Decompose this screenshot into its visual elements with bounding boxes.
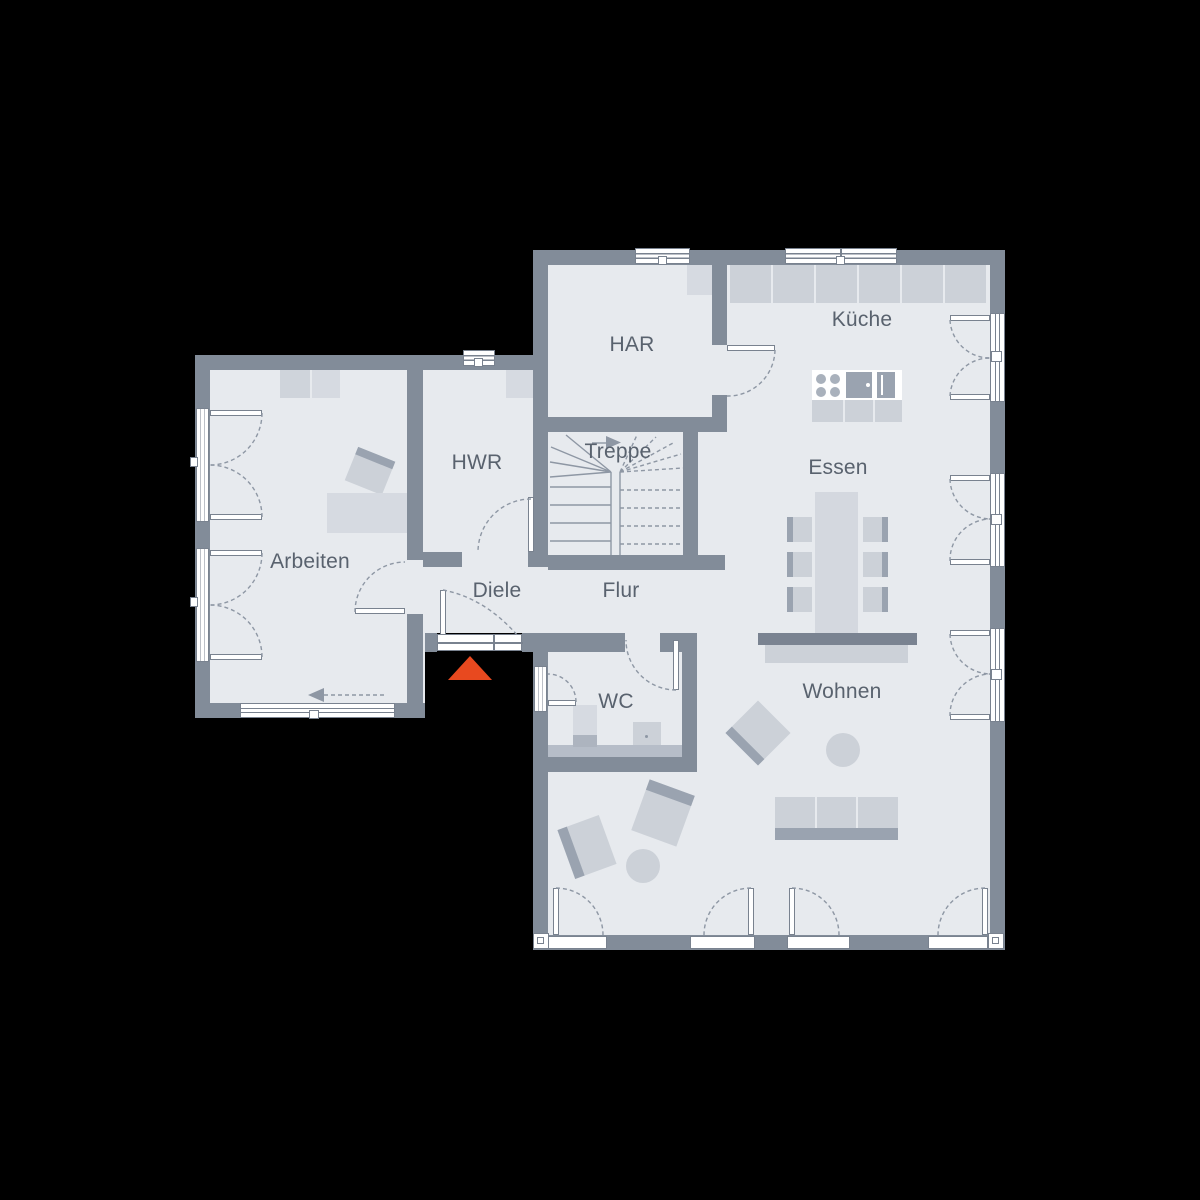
- room-label-diele: Diele: [473, 579, 522, 603]
- room-label-har: HAR: [610, 333, 655, 357]
- room-label-kueche: Küche: [832, 308, 893, 332]
- room-label-arbeiten: Arbeiten: [270, 550, 350, 574]
- floor-plan: HAR Küche HWR Treppe Essen Arbeiten Diel…: [0, 0, 1200, 1200]
- plan-linework: [0, 0, 1200, 1200]
- entrance-marker-icon: [448, 656, 492, 680]
- room-label-treppe: Treppe: [585, 440, 652, 464]
- room-label-wc: WC: [598, 690, 633, 714]
- room-label-hwr: HWR: [452, 451, 503, 475]
- room-label-essen: Essen: [808, 456, 867, 480]
- room-label-wohnen: Wohnen: [802, 680, 881, 704]
- walk-direction-arrow-icon: [308, 688, 324, 702]
- room-label-flur: Flur: [603, 579, 640, 603]
